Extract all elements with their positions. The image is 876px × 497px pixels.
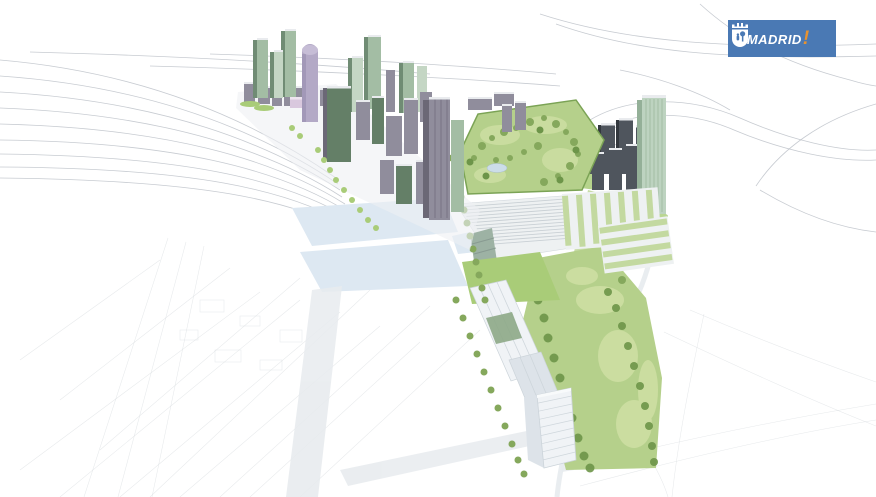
wordmark-text: MADRID [747,33,802,46]
cylinder-tower [302,44,318,122]
crest-shield [732,30,748,48]
madrid-city-logo: ¡ MADRID ! [728,20,836,57]
close-exclamation: ! [803,29,810,48]
presentation-slide: ¡ MADRID ! [0,0,876,497]
crest-crown [732,23,748,28]
white-office-tower [524,388,576,468]
park-pond [487,164,507,173]
green-roof-wing-south [598,216,674,273]
central-twin-towers [423,97,464,220]
masterplan-rendering [0,0,876,497]
central-park [460,92,604,194]
